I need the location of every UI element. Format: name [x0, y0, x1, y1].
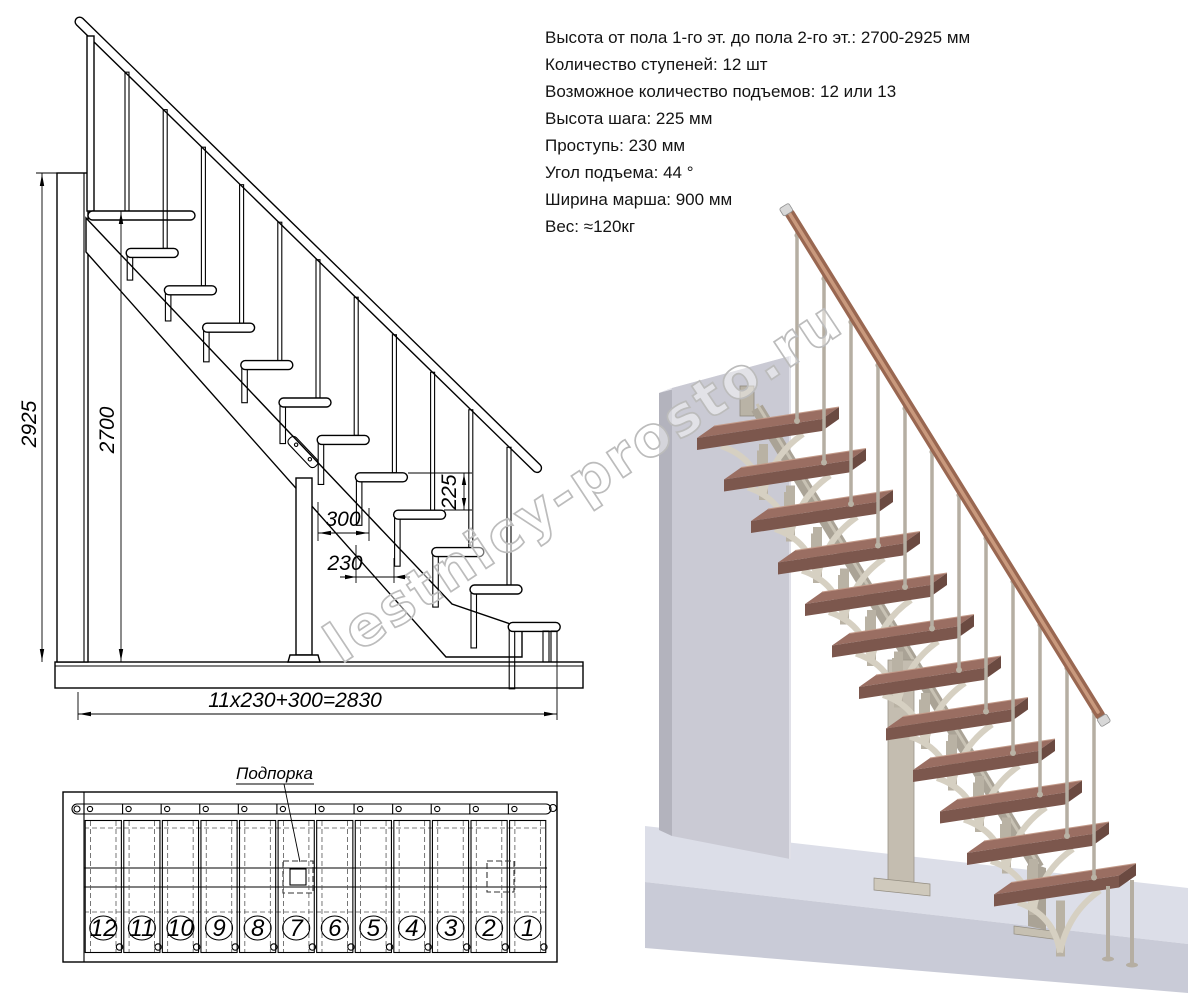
plan-handrail-cap-left: [74, 806, 80, 812]
side-view: 2925 2700 225 300: [18, 15, 583, 720]
baluster-base-3d: [1091, 875, 1097, 881]
plan-baluster-mark: [203, 806, 208, 811]
step-2d: [508, 622, 560, 631]
support-column-2d: [296, 478, 312, 655]
step-2d: [355, 473, 407, 482]
spec-line-step-count: Количество ступеней: 12 шт: [545, 51, 1065, 78]
baluster-base-3d: [1010, 750, 1016, 756]
plan-baluster-mark: [165, 806, 170, 811]
step-2d: [164, 286, 216, 295]
spec-line-width: Ширина марша: 900 мм: [545, 186, 1065, 213]
plan-baluster-mark: [512, 806, 517, 811]
plan-support-detail-inner: [290, 869, 306, 885]
plan-step-number: 4: [405, 915, 418, 942]
spec-block: Высота от пола 1-го эт. до пола 2-го эт.…: [545, 24, 1065, 240]
plan-step-number: 10: [167, 915, 194, 942]
leg-foot: [1102, 957, 1114, 962]
plan-baluster-mark: [319, 806, 324, 811]
plan-step-number: 12: [90, 915, 117, 942]
step-2d: [203, 323, 255, 332]
plan-step-number: 1: [521, 915, 534, 942]
iso-view: [645, 203, 1188, 993]
plan-handrail: [72, 804, 551, 814]
baluster-base-3d: [902, 584, 908, 590]
baluster-2d: [316, 260, 320, 398]
wall-post-2d: [57, 173, 88, 662]
dim-run: 230: [326, 552, 362, 575]
spec-line-height-range: Высота от пола 1-го эт. до пола 2-го эт.…: [545, 24, 1065, 51]
baluster-base-3d: [956, 667, 962, 673]
page: 2925 2700 225 300: [0, 0, 1191, 993]
plan-baluster-mark: [435, 806, 440, 811]
side-view-steps: [88, 72, 560, 689]
spec-line-rise-count: Возможное количество подъемов: 12 или 13: [545, 78, 1065, 105]
step-2d: [241, 361, 293, 370]
top-post-2d: [87, 36, 94, 211]
baluster-base-3d: [848, 501, 854, 507]
step-2d: [317, 435, 369, 444]
plan-baluster-mark: [280, 806, 285, 811]
spec-line-step-height: Высота шага: 225 мм: [545, 105, 1065, 132]
baluster-base-3d: [1037, 792, 1043, 798]
dim-total-length-label: 11x230+300=2830: [208, 689, 382, 712]
step-2d: [394, 510, 446, 519]
baluster-base-3d: [821, 460, 827, 466]
plan-step-number: 11: [129, 915, 154, 942]
baluster-2d: [354, 297, 358, 435]
plan-step-number: 2: [481, 915, 495, 942]
baluster-2d: [240, 185, 244, 324]
baluster-2d: [278, 222, 282, 360]
spec-line-weight: Вес: ≈120кг: [545, 213, 1065, 240]
dim-floor-height: 2700: [96, 406, 119, 454]
baluster-2d: [163, 110, 167, 249]
plan-support-leader: [284, 784, 300, 862]
plan-baluster-mark: [357, 806, 362, 811]
plan-baluster-mark: [87, 806, 92, 811]
plan-step-number: 9: [212, 915, 225, 942]
spec-line-tread: Проступь: 230 мм: [545, 132, 1065, 159]
baluster-base-3d: [929, 626, 935, 632]
leg-foot: [1126, 963, 1138, 968]
plan-baluster-mark: [396, 806, 401, 811]
dim-total-height: 2925: [18, 400, 41, 448]
baluster-base-3d: [794, 418, 800, 424]
plan-view: 121110987654321 Подпорка: [63, 764, 557, 962]
baluster-2d: [392, 335, 396, 473]
step1-leg-2d: [551, 631, 557, 662]
step-2d: [88, 211, 195, 220]
baluster-base-3d: [1064, 833, 1070, 839]
step-2d: [126, 248, 178, 257]
baluster-base-3d: [875, 543, 881, 549]
plan-baluster-mark: [473, 806, 478, 811]
baluster-2d: [431, 372, 435, 510]
dim-riser: 225: [438, 474, 461, 510]
step-2d: [279, 398, 331, 407]
baluster-2d: [201, 147, 205, 286]
dim-tread: 300: [325, 508, 360, 531]
plan-support-label: Подпорка: [236, 764, 313, 783]
support-column-foot-2d: [288, 655, 320, 662]
plan-step-cells: 121110987654321: [84, 804, 547, 953]
plan-baluster-mark: [126, 806, 131, 811]
step1-leg-2d: [543, 631, 549, 662]
dim-225: 225: [408, 473, 472, 511]
plan-step-number: 3: [444, 915, 458, 942]
baluster-2d: [125, 72, 129, 211]
plan-step-number: 6: [328, 915, 342, 942]
baluster-base-3d: [983, 709, 989, 715]
spec-line-angle: Угол подъема: 44 °: [545, 159, 1065, 186]
plan-baluster-mark: [242, 806, 247, 811]
plan-step-number: 5: [367, 915, 381, 942]
plan-step-number: 8: [251, 915, 265, 942]
plan-step-number: 7: [290, 915, 305, 942]
dim-2925: 2925: [18, 173, 58, 662]
